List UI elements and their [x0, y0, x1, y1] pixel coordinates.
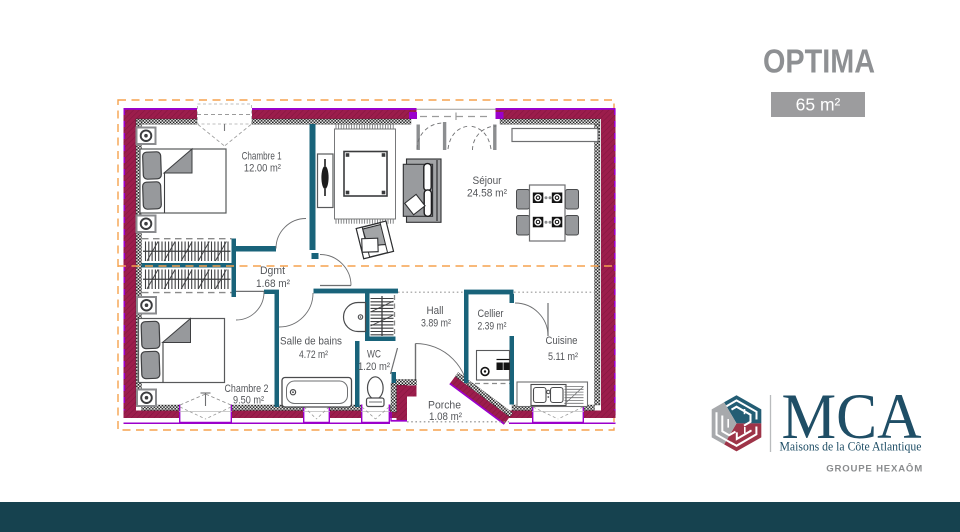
svg-text:Chambre 2: Chambre 2 [225, 383, 269, 395]
svg-text:Cellier: Cellier [478, 308, 504, 320]
svg-text:65 m²: 65 m² [796, 95, 841, 115]
svg-text:Dgmt: Dgmt [260, 265, 285, 277]
svg-text:5.11 m²: 5.11 m² [548, 351, 578, 363]
svg-text:12.00 m²: 12.00 m² [244, 163, 281, 175]
svg-text:2.39 m²: 2.39 m² [478, 321, 507, 333]
svg-text:Séjour: Séjour [473, 175, 502, 187]
svg-text:WC: WC [367, 349, 381, 361]
svg-text:Chambre 1: Chambre 1 [242, 151, 282, 163]
svg-text:GROUPE HEXAÔM: GROUPE HEXAÔM [826, 463, 923, 475]
svg-text:OPTIMA: OPTIMA [763, 44, 875, 81]
svg-text:9.50 m²: 9.50 m² [233, 395, 264, 407]
svg-text:1.08 m²: 1.08 m² [429, 411, 462, 423]
svg-text:Hall: Hall [427, 305, 444, 317]
svg-text:Salle de bains: Salle de bains [280, 336, 342, 348]
svg-text:4.72 m²: 4.72 m² [299, 349, 328, 361]
svg-text:Maisons de la Côte Atlantique: Maisons de la Côte Atlantique [780, 440, 922, 454]
svg-text:Porche: Porche [428, 400, 461, 412]
svg-text:3.89 m²: 3.89 m² [421, 318, 451, 330]
svg-text:24.58 m²: 24.58 m² [467, 188, 507, 200]
svg-text:1.20 m²: 1.20 m² [358, 361, 390, 373]
svg-text:Cuisine: Cuisine [546, 335, 578, 347]
svg-text:1.68 m²: 1.68 m² [256, 278, 290, 290]
